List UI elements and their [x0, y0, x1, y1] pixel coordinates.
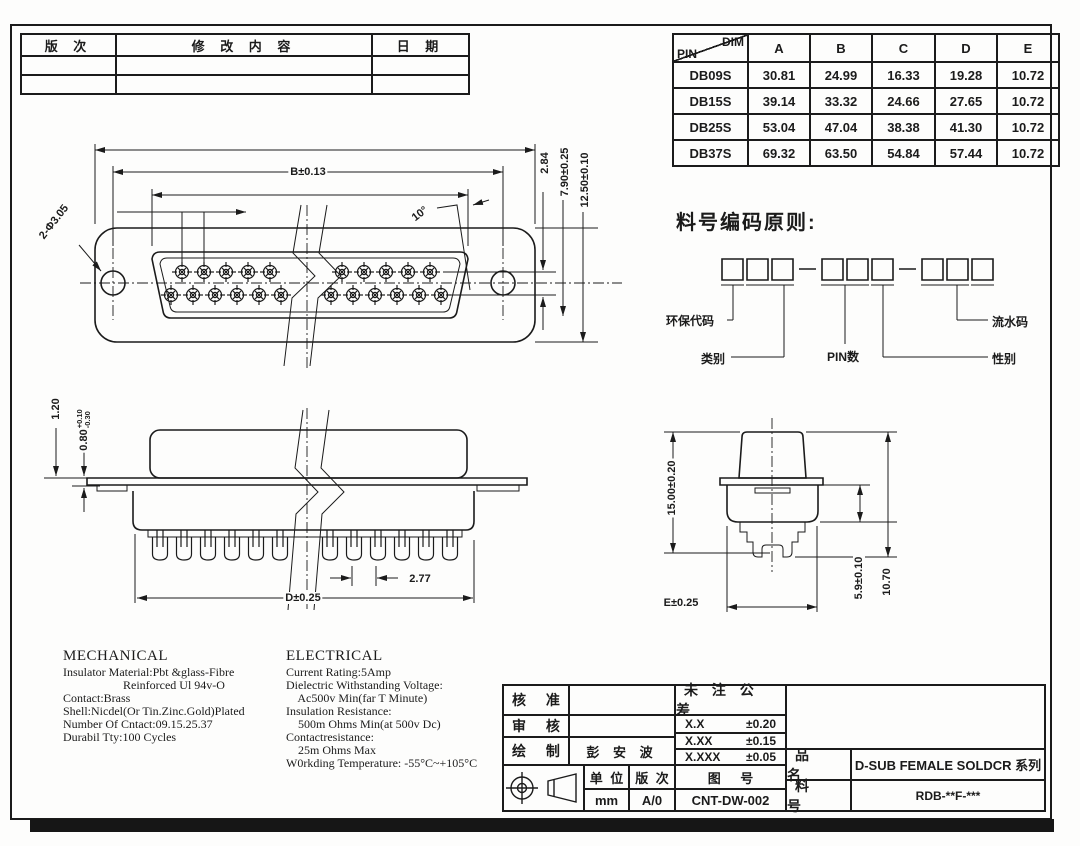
corner-dim-label: DIM	[722, 35, 744, 49]
reviewed-label: 审 核	[502, 714, 570, 738]
spec-line: Durabil Tty:100 Cycles	[63, 731, 245, 744]
electrical-title: ELECTRICAL	[286, 650, 477, 663]
dim-2-77: 2.77	[407, 573, 432, 585]
drawing-no-value: CNT-DW-002	[674, 788, 787, 812]
table-row: DB15S39.1433.3224.6627.6510.72	[673, 88, 1059, 114]
dim-0-80-value: 0.80	[78, 429, 90, 450]
revision-row	[21, 75, 469, 94]
coding-label-gender: 性别	[992, 350, 1016, 367]
approved-label: 核 准	[502, 684, 570, 716]
rev-col-content: 修 改 内 容	[116, 34, 372, 56]
dim-0-80: 0.80+0.10-0.30	[76, 407, 92, 452]
dim-1-20: 1.20	[50, 396, 62, 421]
dim-15-00: 15.00±0.20	[666, 459, 678, 518]
mechanical-title: MECHANICAL	[63, 650, 245, 663]
dim-7-90: 7.90±0.25	[559, 146, 571, 199]
tol-digits: X.XXX	[685, 750, 720, 764]
tolerance-title: 未 注 公 差	[674, 684, 787, 716]
table-row: DB25S53.0447.0438.3841.3010.72	[673, 114, 1059, 140]
spec-line: W0rkding Temperature: -55°C~+105°C	[286, 757, 477, 770]
coding-title: 料号编码原则:	[676, 206, 817, 235]
third-angle-projection-icon	[505, 766, 583, 810]
part-no-label: 料 号	[785, 779, 852, 812]
col-E: E	[997, 34, 1059, 62]
table-row: DB37S69.3263.5054.8457.4410.72	[673, 140, 1059, 166]
electrical-spec-block: ELECTRICAL Current Rating:5Amp Dielectri…	[286, 650, 477, 770]
corner-pin-label: PIN	[677, 47, 697, 61]
dim-5-9: 5.9±0.10	[853, 555, 865, 602]
unit-value: mm	[583, 788, 630, 812]
dim-row-pitch: 2.84	[539, 150, 551, 175]
tol-value: ±0.15	[746, 734, 776, 748]
col-A: A	[748, 34, 810, 62]
dim-d: D±0.25	[283, 592, 322, 604]
part-no-value: RDB-**F-***	[850, 779, 1046, 812]
drawn-signature: 彭 安 波	[568, 736, 676, 766]
revision-label: 版 次	[628, 764, 676, 790]
approved-signature	[568, 684, 676, 716]
dim-0-80-minus: -0.30	[84, 409, 92, 428]
reviewed-signature	[568, 714, 676, 738]
coding-label-pin-count: PIN数	[827, 348, 859, 365]
tolerance-row: X.X±0.20	[674, 714, 787, 734]
tol-value: ±0.05	[746, 750, 776, 764]
unit-label: 单 位	[583, 764, 630, 790]
dim-table-corner: DIM PIN	[673, 34, 748, 62]
dim-b: B±0.13	[288, 166, 327, 178]
drawn-label: 绘 制	[502, 736, 570, 766]
col-D: D	[935, 34, 997, 62]
drawing-no-label: 图 号	[674, 764, 787, 790]
tol-value: ±0.20	[746, 717, 776, 731]
table-row: DB09S30.8124.9916.3319.2810.72	[673, 62, 1059, 88]
projection-symbol-cell	[502, 764, 585, 812]
coding-label-serial: 流水码	[992, 313, 1028, 330]
company-logo-cell	[785, 684, 1046, 750]
engineering-drawing-page: 版 次 修 改 内 容 日 期 DIM PIN A B C D E DB09S3…	[0, 0, 1080, 846]
revision-value: A/0	[628, 788, 676, 812]
revision-table: 版 次 修 改 内 容 日 期	[20, 33, 470, 95]
dimension-table: DIM PIN A B C D E DB09S30.8124.9916.3319…	[672, 33, 1060, 167]
dim-12-50: 12.50±0.10	[579, 151, 591, 210]
revision-row	[21, 56, 469, 75]
tol-digits: X.X	[685, 717, 704, 731]
front-view	[79, 144, 622, 368]
mechanical-spec-block: MECHANICAL Insulator Material:Pbt &glass…	[63, 650, 245, 744]
rev-col-date: 日 期	[372, 34, 469, 56]
coding-label-category: 类别	[701, 350, 725, 367]
tol-digits: X.XX	[685, 734, 712, 748]
rev-col-version: 版 次	[21, 34, 116, 56]
col-B: B	[810, 34, 872, 62]
product-name-value: D-SUB FEMALE SOLDCR 系列	[850, 748, 1046, 781]
dim-10-70: 10.70	[881, 566, 893, 598]
coding-label-eco: 环保代码	[666, 312, 714, 329]
side-view	[44, 408, 527, 612]
col-C: C	[872, 34, 935, 62]
dim-e: E±0.25	[662, 597, 701, 609]
coding-diagram	[721, 259, 994, 357]
